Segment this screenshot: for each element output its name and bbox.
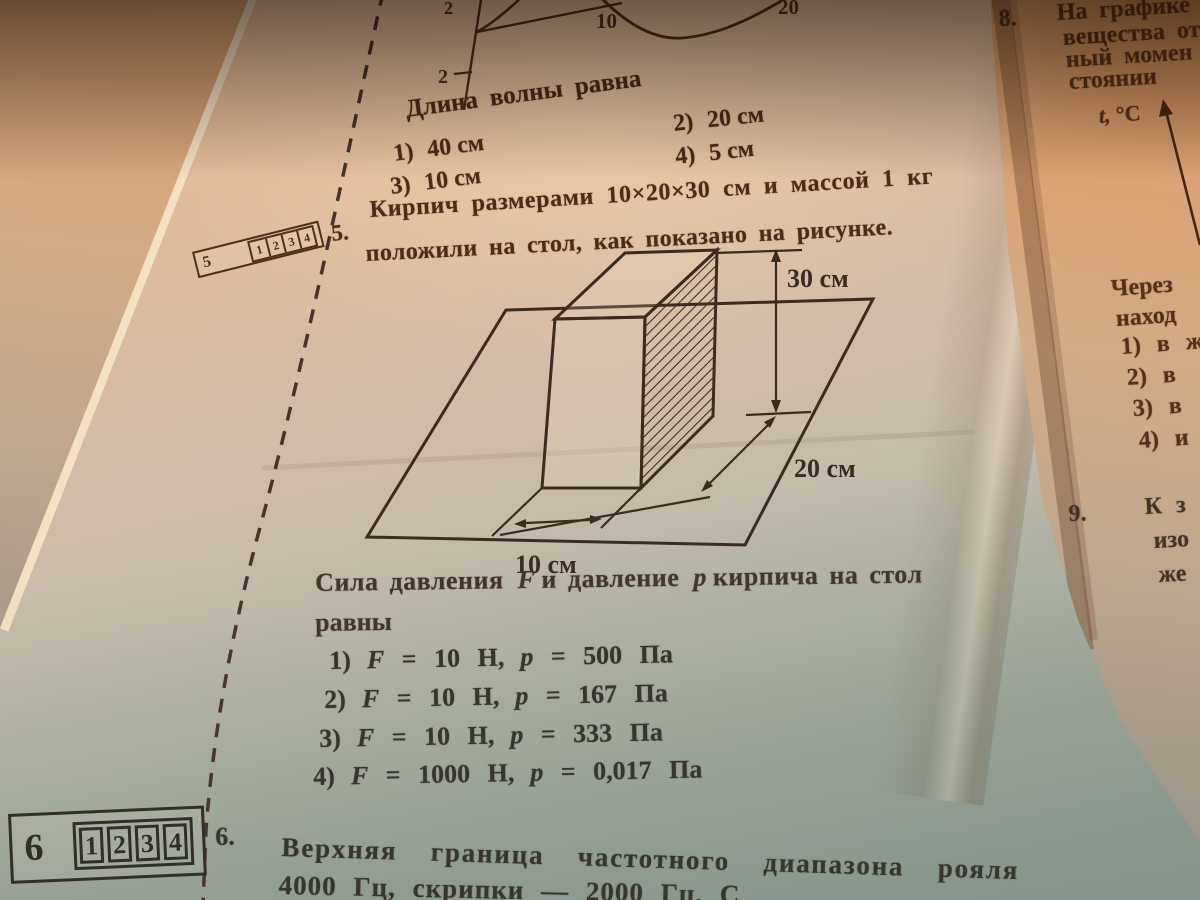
photo-scene: 8. На графике вещества от ный момен стоя… [0, 0, 1200, 900]
wooden-table [0, 0, 1200, 900]
